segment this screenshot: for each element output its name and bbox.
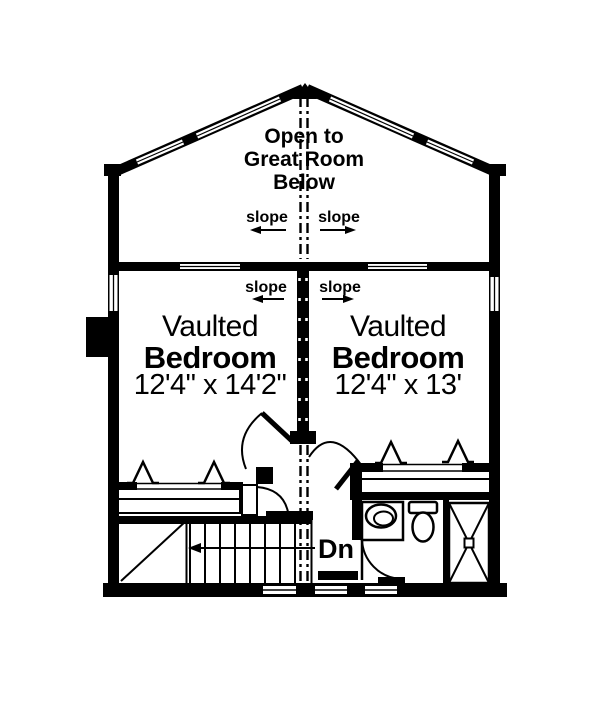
slope-text: slope [246, 209, 288, 226]
floor-plan-page: slope slope slope slope Open to Great Ro… [0, 0, 600, 714]
closet-door-jamb [242, 485, 257, 515]
wall-bottom [103, 583, 507, 597]
open-label-line3: Below [273, 171, 336, 194]
hall-threshold [318, 571, 358, 580]
slope-label-upper-left: slope [246, 209, 288, 234]
stairs-down-label: Dn [318, 534, 354, 564]
slope-text: slope [245, 279, 287, 296]
wall-left [108, 170, 119, 597]
room-name-line1: Vaulted [350, 310, 446, 343]
toilet-bowl-icon [413, 513, 434, 542]
floor-plan-canvas: slope slope slope slope Open to Great Ro… [0, 0, 600, 714]
shower-drain-icon [465, 539, 474, 548]
stair-landing-wall [266, 511, 313, 520]
wall-between-bedrooms [297, 262, 309, 443]
closet2-wall-seg-right [462, 463, 489, 472]
room-dimensions: 12'4" x 14'2" [134, 369, 287, 401]
open-label-line1: Open to [264, 125, 343, 148]
open-label-line2: Great Room [244, 148, 364, 171]
wall-right [489, 170, 500, 597]
bedroom-right-label: Vaulted Bedroom 12'4" x 13' [332, 310, 465, 401]
closet2-wall-seg-left [362, 463, 383, 472]
slope-label-upper-right: slope [318, 209, 360, 234]
room-name-line1: Vaulted [162, 310, 258, 343]
chimney [86, 317, 109, 357]
slope-text: slope [318, 209, 360, 226]
door-hinge-block [290, 431, 316, 444]
door-jamb-block [256, 467, 273, 484]
bathroom-front-wall [352, 492, 497, 500]
room-dimensions: 12'4" x 13' [334, 369, 461, 401]
slope-text: slope [319, 279, 361, 296]
